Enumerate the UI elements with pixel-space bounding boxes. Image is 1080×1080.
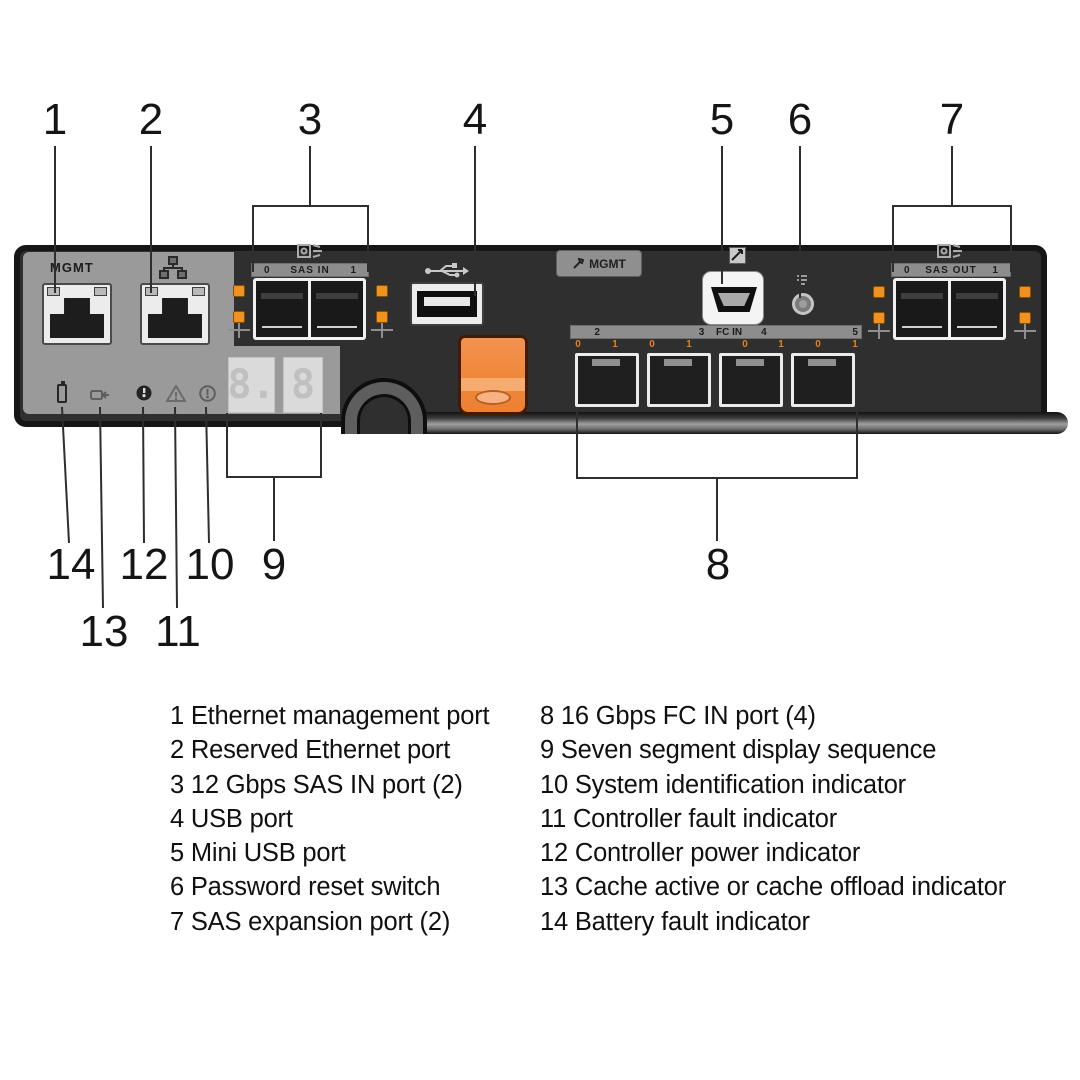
sas-in-strip: 0 SAS IN 1 [251,263,369,277]
legend-item-3: 3 12 Gbps SAS IN port (2) [170,768,489,802]
sas-in-led [376,311,388,323]
sas-out-ports [893,278,1006,340]
controller-fault-indicator-icon [166,385,186,402]
legend-item-12: 12 Controller power indicator [540,836,1006,870]
eth-led-left [145,287,158,296]
sas-out-led [1019,312,1031,324]
sas-in-key-symbol [228,323,250,338]
fc-led-label: 0 [742,339,748,350]
callout-3: 3 [265,98,355,142]
controller-power-indicator-icon [136,385,152,401]
fc-in-port-0 [575,353,639,407]
legend-item-7: 7 SAS expansion port (2) [170,905,489,939]
fc-group-3-label: 3 [699,327,705,338]
callout-4: 4 [430,98,520,142]
legend-item-8: 8 16 Gbps FC IN port (4) [540,699,1006,733]
sas-in-led [376,285,388,297]
controller-release-latch [458,335,528,415]
network-icon [159,256,187,280]
eth-led-left [47,287,60,296]
mgmt-port-label: MGMT [50,260,94,275]
sas-out-port-1 [951,281,1003,337]
legend-item-2: 2 Reserved Ethernet port [170,733,489,767]
sas-out-port0-label: 0 [904,265,910,276]
system-identification-indicator-icon [199,385,216,402]
callout-9: 9 [229,543,319,587]
callout-2: 2 [106,98,196,142]
callout-8: 8 [673,543,763,587]
sas-in-port0-label: 0 [264,265,270,276]
sas-out-strip: 0 SAS OUT 1 [891,263,1011,277]
fc-in-label: FC IN [716,327,742,338]
callout-7: 7 [907,98,997,142]
legend-item-14: 14 Battery fault indicator [540,905,1006,939]
legend-item-6: 6 Password reset switch [170,870,489,904]
rj45-jack [148,298,202,338]
sas-out-led [873,286,885,298]
sas-out-key-symbol [1014,324,1036,339]
callout-5: 5 [677,98,767,142]
eth-led-right [192,287,205,296]
sas-in-key-symbol [371,323,393,338]
reset-switch-icon [795,274,809,288]
fc-in-port-3 [791,353,855,407]
usb-port-tongue [424,297,470,306]
sas-out-port1-label: 1 [992,265,998,276]
legend-item-5: 5 Mini USB port [170,836,489,870]
serial-config-icon [729,247,746,264]
sas-in-ports [253,278,366,340]
sas-out-label: SAS OUT [925,265,976,276]
fc-group-4-label: 4 [761,327,767,338]
usb-icon [424,262,470,279]
fc-led-label: 1 [612,339,618,350]
legend-item-10: 10 System identification indicator [540,768,1006,802]
sas-in-port1-label: 1 [350,265,356,276]
sas-out-key-symbol [868,324,890,339]
legend-item-1: 1 Ethernet management port [170,699,489,733]
sas-out-port-0 [896,281,948,337]
callout-6: 6 [755,98,845,142]
sas-icon [296,242,324,262]
mgmt-badge: MGMT [556,250,642,277]
sas-in-led [233,311,245,323]
password-reset-switch [792,293,814,315]
controller-diagram: 1 2 3 4 5 6 7 14 12 10 9 8 13 11 MGMT [0,0,1080,1080]
fc-in-strip: 2 3 FC IN 4 5 [570,325,862,339]
cache-active-indicator-icon [90,388,110,402]
sas-out-led [873,312,885,324]
legend-item-11: 11 Controller fault indicator [540,802,1006,836]
battery-fault-indicator-icon [57,384,67,403]
sas-out-led [1019,286,1031,298]
sas-in-led [233,285,245,297]
fc-group-5-label: 5 [852,327,858,338]
usb-port [410,282,484,326]
callout-11: 11 [133,610,223,654]
seven-segment-digit-2: 8 [283,357,323,413]
seven-segment-digit-1: 8. [228,357,275,413]
fc-led-label: 0 [649,339,655,350]
sas-in-port-1 [311,281,363,337]
ethernet-management-port [42,283,112,345]
wrench-icon [572,258,584,270]
mgmt-badge-label: MGMT [589,257,626,271]
reserved-ethernet-port [140,283,210,345]
fc-led-label: 1 [686,339,692,350]
legend-item-9: 9 Seven segment display sequence [540,733,1006,767]
legend-left-column: 1 Ethernet management port 2 Reserved Et… [170,699,489,939]
fc-led-labels: 0 1 0 1 0 1 0 1 [570,339,862,351]
fc-in-port-1 [647,353,711,407]
legend-item-13: 13 Cache active or cache offload indicat… [540,870,1006,904]
latch-grip [475,390,511,405]
fc-in-port-2 [719,353,783,407]
controller-handle-bar [346,412,1068,434]
legend-item-4: 4 USB port [170,802,489,836]
fc-led-label: 0 [575,339,581,350]
eth-led-right [94,287,107,296]
fc-led-label: 1 [778,339,784,350]
sas-in-label: SAS IN [290,265,329,276]
fc-led-label: 0 [815,339,821,350]
fc-group-2-label: 2 [594,327,600,338]
fc-led-label: 1 [852,339,858,350]
legend-right-column: 8 16 Gbps FC IN port (4) 9 Seven segment… [540,699,1006,939]
rj45-jack [50,298,104,338]
callout-1: 1 [10,98,100,142]
mini-usb-port [702,271,764,325]
sas-in-port-0 [256,281,308,337]
sas-out-icon [936,242,964,262]
